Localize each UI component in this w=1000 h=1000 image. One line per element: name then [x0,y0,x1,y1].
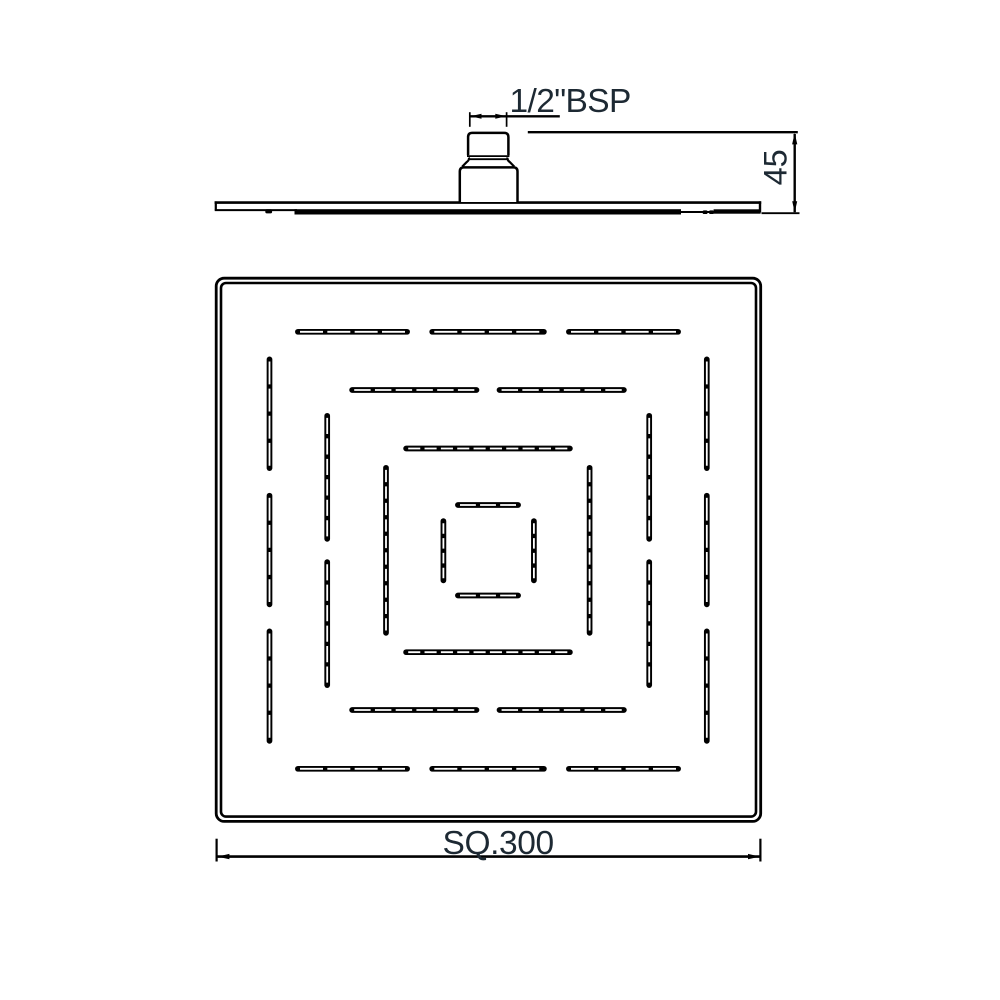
svg-text:1/2"BSP: 1/2"BSP [510,83,631,120]
svg-text:45: 45 [758,149,794,185]
svg-text:SQ.300: SQ.300 [443,825,554,862]
